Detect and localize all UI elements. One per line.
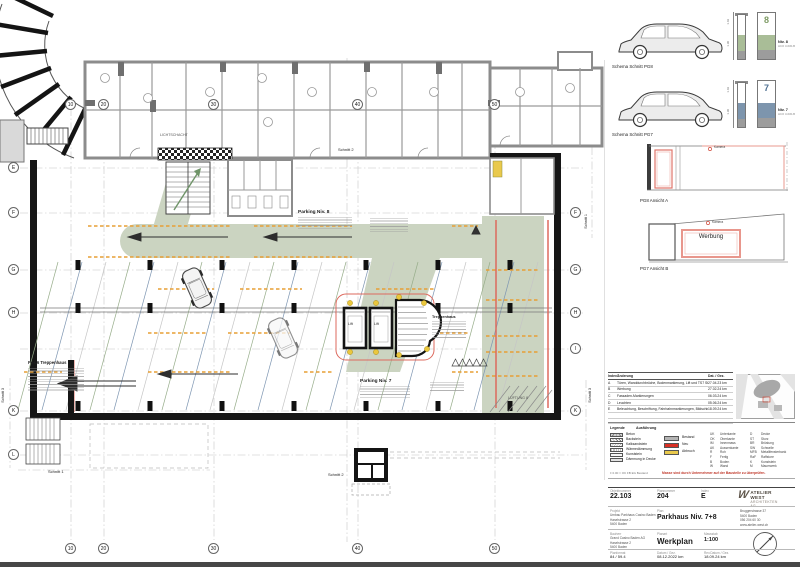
grid-bubble-top-10: 10 bbox=[65, 99, 76, 110]
plannr-value: 204 bbox=[657, 493, 669, 500]
titleblock-divider bbox=[608, 506, 795, 507]
swatch-kalksandstein bbox=[610, 443, 623, 447]
legend-material-label: Wärmedämmung bbox=[626, 448, 652, 452]
revision-header-row: Index Änderung Dat. / Gez. bbox=[608, 372, 733, 380]
grid-bubble-bottom-40: 40 bbox=[352, 543, 363, 554]
swatch-bestand bbox=[664, 436, 679, 441]
triangle-markers bbox=[452, 359, 487, 366]
swatch-waermedaemmung bbox=[610, 448, 623, 452]
revision-row: E Beleuchtung, Beschriftung, Fahrbahnmar… bbox=[608, 406, 733, 413]
column-narrow bbox=[737, 82, 746, 128]
legend-footnote: ± 0.00 = OK FB EG Bestand bbox=[610, 472, 648, 475]
rev-header-text: Änderung bbox=[617, 374, 708, 378]
column-wide: 7 bbox=[757, 80, 776, 128]
rev-text: Leuchten bbox=[617, 401, 708, 405]
grid-bubble-right-H: H bbox=[570, 307, 581, 318]
rev-index: D bbox=[608, 401, 617, 405]
titleblock-top-border bbox=[608, 487, 795, 488]
new-elements bbox=[74, 160, 548, 412]
massstab-value: 1:100 bbox=[704, 537, 718, 543]
rev-text: Fassaden-Markierungen bbox=[617, 394, 708, 398]
treppenhaus-label: Treppenhaus bbox=[432, 315, 456, 319]
schnitt1-label: Schnitt 1 bbox=[48, 470, 64, 475]
grid-bubble-left-E: E bbox=[8, 162, 19, 173]
legend-status-label: Neu bbox=[682, 443, 688, 447]
car-side-view-icon bbox=[613, 16, 725, 62]
schnitt1-right-label: Schnitt 1 bbox=[584, 214, 588, 229]
grid-bubble-bottom-50: 50 bbox=[489, 543, 500, 554]
camera-label: Kamera bbox=[714, 146, 725, 150]
car-side-view-icon bbox=[613, 84, 725, 130]
sheet-bottom-edge bbox=[0, 562, 800, 567]
top-stair bbox=[166, 162, 210, 214]
firm-name: ATELIER WEST bbox=[750, 490, 777, 500]
grid-bubble-bottom-20: 20 bbox=[98, 543, 109, 554]
grid-bubble-left-H: H bbox=[8, 307, 19, 318]
swatch-abbruch bbox=[664, 450, 679, 455]
level-code: HCO 3-630-B bbox=[778, 45, 795, 48]
legend-material-label: Dämmung in Decke bbox=[626, 458, 656, 462]
rev-value: 18.09.24 km bbox=[704, 555, 726, 560]
datum-value: 08.12.2022 km bbox=[657, 555, 683, 560]
legend-material-label: Beton bbox=[626, 433, 635, 437]
deck-walls bbox=[30, 153, 561, 420]
revision-table: Index Änderung Dat. / Gez. A Türen, Wand… bbox=[608, 372, 733, 424]
grid-bubble-bottom-30: 30 bbox=[208, 543, 219, 554]
note-lines bbox=[370, 218, 408, 232]
lichtschacht-label: LICHTSCHACHT bbox=[160, 133, 188, 137]
index-value: E bbox=[701, 493, 706, 500]
planart-value: Werkplan bbox=[657, 537, 693, 546]
abbr-key: M bbox=[750, 465, 753, 469]
dim-bottom: 1.90 bbox=[727, 41, 730, 47]
level-digit: 7 bbox=[758, 83, 775, 93]
titleblock-divider bbox=[608, 529, 795, 530]
grid-bubble-bottom-10: 10 bbox=[65, 543, 76, 554]
grid-bubble-left-K: K bbox=[8, 405, 19, 416]
swatch-neu bbox=[664, 443, 679, 448]
plan-sheet: 10 20 30 40 50 10 20 30 40 50 E F G H K … bbox=[0, 0, 800, 567]
schnitt3-right-label: Schnitt 3 bbox=[588, 388, 592, 403]
swatch-beton bbox=[610, 433, 623, 437]
pos6-treppenhaus-label: Pos.6 Treppenhaus bbox=[28, 361, 66, 366]
legend-subtitle: Ausführung bbox=[636, 426, 656, 430]
legend-material-label: Backstein bbox=[626, 438, 641, 442]
rev-date: 27.04.23 km bbox=[708, 381, 733, 385]
revision-row: A Türen, Wanddurchbrüche, Bodenmarkierun… bbox=[608, 380, 733, 387]
lift2-label: Lift bbox=[374, 322, 379, 326]
sheet-divider bbox=[604, 60, 605, 480]
north-arrow-icon bbox=[752, 531, 778, 557]
grid-bubble-top-50: 50 bbox=[489, 99, 500, 110]
grid-bubble-left-G: G bbox=[8, 264, 19, 275]
grid-bubble-top-30: 30 bbox=[208, 99, 219, 110]
revision-row: B Werbung 27.02.24 km bbox=[608, 387, 733, 394]
level-digit: 8 bbox=[758, 15, 775, 25]
camera-icon bbox=[708, 147, 711, 150]
abbr-value: Mauerwerk bbox=[761, 465, 777, 469]
grid-bubble-top-20: 20 bbox=[98, 99, 109, 110]
schnitt2-bottom-label: Schnitt 2 bbox=[328, 473, 344, 478]
grid-bubble-right-F: F bbox=[570, 207, 581, 218]
format-value: 84 / 59.4 bbox=[610, 555, 626, 560]
lift-shaft-1 bbox=[344, 308, 366, 348]
rev-text: Werbung bbox=[617, 387, 708, 391]
dim-chain bbox=[733, 80, 734, 128]
left-stair bbox=[27, 128, 68, 144]
legend-status-label: Abbruch bbox=[682, 450, 695, 454]
revision-row: D Leuchten 05.06.24 km bbox=[608, 400, 733, 407]
hatched-wall bbox=[158, 148, 232, 160]
car-top-view-1 bbox=[179, 265, 215, 310]
wc-block bbox=[228, 160, 292, 216]
deck-rooms bbox=[490, 158, 554, 214]
lueftung-label: LÜFTUNG 8 bbox=[508, 396, 528, 400]
schema-pg7-caption: Schema Schnitt PG7 bbox=[612, 132, 653, 137]
rev-text: Beleuchtung, Beschriftung, Fahrbahnmarki… bbox=[617, 407, 708, 411]
dim-chain bbox=[733, 12, 734, 60]
note-lines bbox=[360, 386, 410, 399]
plan-title: Parkhaus Niv. 7+8 bbox=[657, 514, 717, 521]
rev-date: 05.06.24 km bbox=[708, 401, 733, 405]
column-wide: 8 bbox=[757, 12, 776, 60]
schnitt3-left-label: Schnitt 3 bbox=[1, 388, 5, 403]
grid-bubble-left-L: L bbox=[8, 449, 19, 460]
titleblock-divider bbox=[608, 549, 795, 550]
legend-divider bbox=[608, 422, 795, 423]
beam-and-columns bbox=[40, 260, 552, 411]
grid-bubble-right-I: I bbox=[570, 343, 581, 354]
parking-niv7-label: Parking Niv. 7 bbox=[360, 379, 391, 385]
rev-date: 18.09.24 km bbox=[708, 407, 733, 411]
rev-header-date: Dat. / Gez. bbox=[708, 374, 733, 378]
rev-index: C bbox=[608, 394, 617, 398]
rev-header-index: Index bbox=[608, 374, 617, 378]
rev-index: A bbox=[608, 381, 617, 385]
rev-index: B bbox=[608, 387, 617, 391]
legend-title: Legende bbox=[610, 426, 625, 430]
lift1-label: Lift bbox=[348, 322, 353, 326]
lift-shaft-2 bbox=[370, 308, 392, 348]
legend-divider bbox=[608, 478, 795, 479]
note-lines bbox=[432, 321, 466, 339]
legend-material-label: Kunststein bbox=[626, 453, 642, 457]
grid-bubble-left-F: F bbox=[8, 207, 19, 218]
grid-bubble-right-K: K bbox=[570, 405, 581, 416]
level-code: HCO 3-630-B bbox=[778, 113, 795, 116]
note-lines bbox=[298, 217, 352, 230]
dim-top: 1.02 bbox=[727, 87, 730, 93]
abbr-value: Wand bbox=[720, 465, 728, 469]
legend-warning: Masse sind durch Unternehmer auf der Bau… bbox=[662, 472, 765, 476]
swatch-daemmung-decke bbox=[610, 458, 623, 462]
plan-label: Plan bbox=[657, 509, 663, 513]
revision-row: C Fassaden-Markierungen 06.03.24 km bbox=[608, 393, 733, 400]
swatch-kunststein bbox=[610, 453, 623, 457]
elevation-b-caption: PG7 Ansicht B bbox=[640, 266, 668, 271]
car-top-view-2 bbox=[265, 315, 301, 360]
rev-date: 06.03.24 km bbox=[708, 394, 733, 398]
note-lines bbox=[28, 368, 84, 392]
firm-mark-icon: W bbox=[737, 490, 749, 501]
massstab-label: Massstab bbox=[704, 532, 718, 536]
objekt-value: 22.103 bbox=[610, 493, 631, 500]
column-narrow bbox=[737, 14, 746, 60]
dim-top: 1.02 bbox=[727, 19, 730, 25]
rev-date: 27.02.24 km bbox=[708, 387, 733, 391]
firm-address-line: www.atelier-west.ch bbox=[740, 523, 768, 527]
note-lines bbox=[430, 382, 464, 393]
elevation-a-caption: PG8 Ansicht A bbox=[640, 198, 668, 203]
abbr-key: W bbox=[710, 465, 713, 469]
planart-label: Planart bbox=[657, 532, 667, 536]
schnitt2-top-label: Schnitt 2 bbox=[338, 148, 354, 153]
curved-ramp bbox=[0, 0, 91, 162]
parking-niv8-label: Parking Niv. 8 bbox=[298, 210, 329, 216]
legend-status-label: Bestand bbox=[682, 436, 694, 440]
rev-index: E bbox=[608, 407, 617, 411]
werbung-sign-label: Werbung bbox=[682, 234, 740, 241]
rev-text: Türen, Wanddurchbrüche, Bodenmarkierung,… bbox=[617, 381, 708, 385]
dim-bottom: 1.90 bbox=[727, 109, 730, 115]
grid-bubble-top-40: 40 bbox=[352, 99, 363, 110]
site-map bbox=[736, 374, 795, 419]
schema-pg8-caption: Schema Schnitt PG8 bbox=[612, 64, 653, 69]
projekt-line: 5400 Baden bbox=[610, 522, 627, 526]
camera-label: Kamera bbox=[712, 221, 723, 225]
legend-material-label: Kalksandstein bbox=[626, 443, 647, 447]
floor-plan-drawing bbox=[0, 0, 605, 562]
swatch-backstein bbox=[610, 438, 623, 442]
shaft-section bbox=[90, 424, 560, 495]
grid-bubble-right-G: G bbox=[570, 264, 581, 275]
